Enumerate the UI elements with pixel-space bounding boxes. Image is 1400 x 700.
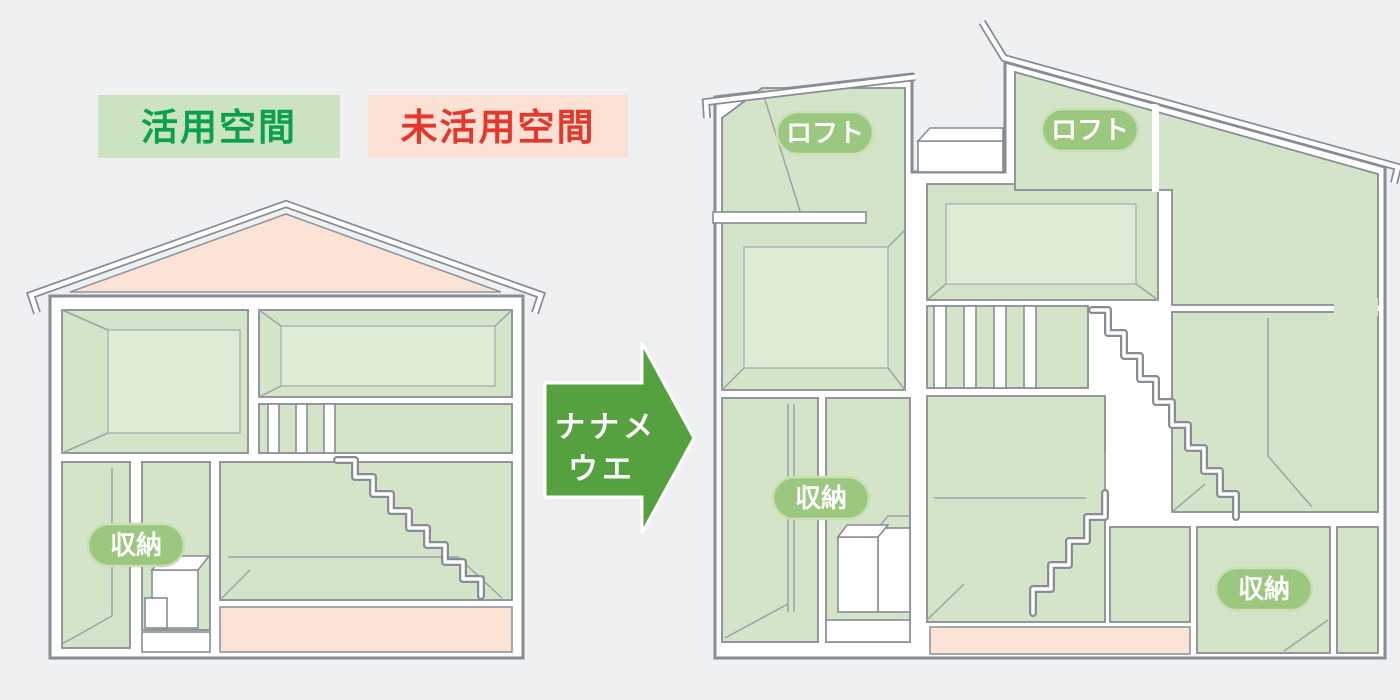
arrow-label-line1: ナナメ	[555, 411, 657, 444]
diagram-canvas: 活用空間 未活用空間	[0, 0, 1400, 700]
arrow-label-line2: ウエ	[568, 453, 636, 486]
after-storage-left-label: 収納	[795, 483, 847, 513]
after-right-room	[1172, 298, 1378, 512]
railing-bar	[934, 306, 946, 388]
railing-bar	[994, 306, 1006, 388]
storage-step-box	[145, 598, 167, 628]
house-comparison-diagram: 活用空間 未活用空間	[0, 0, 1400, 700]
after-loft-right-pill: ロフト	[1042, 109, 1138, 151]
after-loft-right-label: ロフト	[1051, 115, 1129, 145]
after-loft-left-label: ロフト	[786, 118, 864, 148]
after-storage-right-pill: 収納	[1216, 568, 1312, 610]
legend-utilized: 活用空間	[98, 95, 340, 158]
legend-unutilized: 未活用空間	[368, 95, 628, 158]
storage-step-box	[878, 528, 910, 612]
after-house: ロフト ロフト 収納 収納	[706, 22, 1398, 658]
loft-room-connector	[1334, 298, 1378, 316]
loft-divider	[1152, 104, 1159, 192]
after-2f-room	[722, 230, 905, 390]
after-storage-left-pill: 収納	[773, 477, 869, 519]
after-underfloor-unused-space	[930, 627, 1190, 654]
after-understair-room	[1110, 527, 1190, 622]
legend-unutilized-label: 未活用空間	[401, 107, 596, 148]
before-railing	[259, 404, 512, 453]
legend: 活用空間 未活用空間	[98, 95, 628, 158]
entry-step	[142, 632, 210, 652]
entry-step	[826, 620, 910, 642]
before-house: 収納	[31, 204, 541, 658]
after-loft-left-pill: ロフト	[777, 112, 873, 154]
after-storage-right-label: 収納	[1238, 574, 1290, 604]
before-underfloor-unused-space	[220, 607, 512, 652]
railing-bar	[296, 404, 307, 453]
storage-step-box	[838, 537, 878, 612]
before-storage-pill: 収納	[88, 524, 184, 566]
railing-bar	[324, 404, 335, 453]
transform-arrow: ナナメ ウエ	[545, 343, 694, 533]
before-2f-left-room	[62, 310, 248, 453]
before-storage-label: 収納	[110, 530, 162, 560]
after-living-room	[927, 396, 1105, 622]
before-attic-unused-space	[70, 214, 501, 292]
loft-floor-wall	[713, 212, 866, 223]
after-railing	[927, 306, 1088, 388]
before-2f-right-room	[259, 310, 512, 397]
legend-utilized-label: 活用空間	[141, 107, 297, 148]
railing-bar	[1024, 306, 1036, 388]
railing-bar	[268, 404, 279, 453]
railing-bar	[964, 306, 976, 388]
after-mid-room	[927, 184, 1158, 300]
after-rooftop-box	[918, 128, 1003, 172]
